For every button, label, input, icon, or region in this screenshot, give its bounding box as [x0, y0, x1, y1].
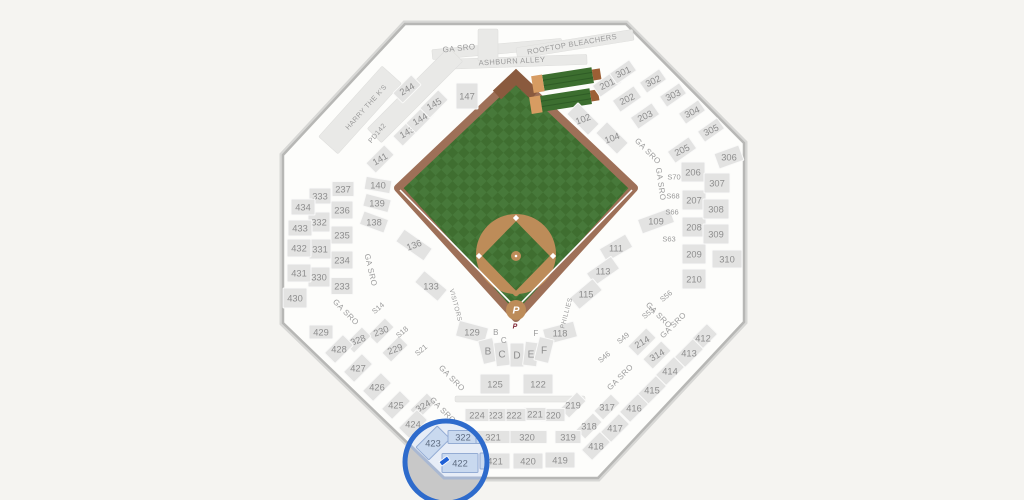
stadium-seat-map: PP10210410911111311511812212512913313613…: [0, 0, 1024, 500]
suite-S70[interactable]: S70: [667, 173, 680, 182]
section-label: 320: [519, 432, 535, 442]
section-label: 416: [626, 403, 642, 413]
section-307[interactable]: 307: [704, 173, 730, 193]
section-label: 420: [520, 456, 536, 466]
section-319[interactable]: 319: [555, 431, 581, 444]
section-label: 308: [708, 204, 724, 214]
section-224[interactable]: 224: [465, 409, 489, 422]
section-label: 129: [464, 327, 480, 337]
section-label: 429: [313, 327, 329, 337]
pitching-rubber: [515, 255, 518, 258]
section-431[interactable]: 431: [287, 264, 311, 282]
section-235[interactable]: 235: [331, 226, 353, 244]
section-label: 113: [596, 266, 611, 276]
section-419[interactable]: 419: [545, 452, 575, 468]
section-label: 147: [459, 91, 475, 101]
label-f: F: [533, 329, 538, 338]
section-label: 122: [530, 379, 546, 389]
section-label: 319: [560, 432, 576, 442]
section-label: 321: [485, 432, 501, 442]
section-label: 422: [452, 458, 468, 468]
section-label: 322: [455, 432, 471, 442]
section-label: 307: [709, 178, 725, 188]
section-208[interactable]: 208: [682, 217, 706, 237]
section-label: 109: [648, 216, 664, 226]
section-label: 430: [287, 293, 303, 303]
phillies-mini-logo-icon: P: [513, 323, 518, 330]
section-label: 139: [369, 198, 385, 208]
section-label: 413: [681, 348, 697, 358]
section-label: 220: [545, 410, 561, 420]
section-434[interactable]: 434: [291, 199, 315, 215]
section-label: 236: [334, 205, 350, 215]
section-label: 421: [487, 456, 503, 466]
label-c: C: [501, 336, 507, 345]
section-125[interactable]: 125: [480, 374, 510, 394]
phillies-logo-icon: P: [512, 305, 520, 317]
section-label: 209: [686, 249, 702, 259]
section-label: 309: [708, 229, 724, 239]
section-209[interactable]: 209: [682, 244, 706, 264]
section-233[interactable]: 233: [331, 278, 353, 295]
section-label: 233: [334, 281, 350, 291]
section-label: 417: [607, 423, 623, 433]
section-label: 234: [334, 255, 350, 265]
section-label: 317: [599, 402, 615, 412]
section-D[interactable]: D: [510, 343, 524, 367]
section-147[interactable]: 147: [456, 83, 478, 109]
section-label: 331: [312, 244, 328, 254]
section-label: 428: [331, 344, 347, 354]
section-420[interactable]: 420: [513, 453, 543, 469]
section-label: 432: [291, 243, 307, 253]
section-label: 318: [581, 421, 597, 431]
section-label: 419: [552, 455, 568, 465]
section-label: 224: [469, 410, 485, 420]
section-433[interactable]: 433: [288, 220, 312, 236]
section-237[interactable]: 237: [332, 182, 354, 197]
section-label: 219: [565, 400, 581, 410]
section-236[interactable]: 236: [331, 201, 353, 219]
section-C[interactable]: C: [494, 341, 511, 367]
section-label: 133: [423, 281, 439, 291]
section-label: C: [498, 350, 505, 361]
section-label: 115: [579, 289, 594, 299]
section-label: 222: [506, 410, 522, 420]
section-label: 125: [487, 379, 503, 389]
section-331[interactable]: 331: [309, 239, 331, 259]
seat-map-page: PP10210410911111311511812212512913313613…: [0, 0, 1024, 500]
section-label: 431: [291, 268, 307, 278]
section-label: D: [513, 351, 520, 362]
section-309[interactable]: 309: [703, 224, 729, 244]
walkway-strip: [478, 29, 498, 61]
section-430[interactable]: 430: [283, 288, 307, 308]
section-210[interactable]: 210: [682, 269, 706, 289]
section-label: 332: [311, 217, 327, 227]
section-432[interactable]: 432: [287, 239, 311, 257]
section-label: 414: [662, 366, 678, 376]
section-206[interactable]: 206: [681, 162, 705, 182]
suite-S63[interactable]: S63: [662, 235, 675, 244]
section-234[interactable]: 234: [331, 251, 353, 269]
section-label: 207: [686, 195, 702, 205]
section-207[interactable]: 207: [682, 190, 706, 210]
section-label: 235: [334, 230, 350, 240]
section-label: 208: [686, 222, 702, 232]
section-label: 221: [527, 409, 543, 419]
section-label: 111: [609, 243, 623, 253]
section-label: 433: [292, 223, 308, 233]
section-label: F: [541, 346, 547, 357]
label-b: B: [493, 328, 499, 337]
section-429[interactable]: 429: [309, 325, 333, 339]
section-label: 138: [366, 217, 382, 227]
section-122[interactable]: 122: [523, 374, 553, 394]
section-label: 223: [487, 410, 503, 420]
section-308[interactable]: 308: [703, 199, 729, 219]
section-label: 237: [335, 184, 351, 194]
section-label: 330: [311, 272, 327, 282]
section-221[interactable]: 221: [524, 408, 546, 421]
section-320[interactable]: 320: [507, 431, 547, 444]
section-label: 206: [685, 167, 701, 177]
section-label: 427: [350, 363, 366, 373]
section-310[interactable]: 310: [712, 250, 742, 268]
section-label: 424: [405, 419, 421, 429]
section-label: 423: [425, 438, 441, 448]
section-label: 310: [719, 254, 735, 264]
section-label: 425: [388, 400, 404, 410]
section-label: 412: [695, 333, 711, 343]
section-label: 426: [369, 382, 385, 392]
section-label: 306: [721, 152, 737, 162]
section-label: 140: [370, 180, 386, 190]
section-label: B: [485, 347, 492, 358]
section-label: 418: [588, 441, 604, 451]
section-label: 434: [295, 202, 311, 212]
section-label: 415: [644, 385, 660, 395]
section-label: 210: [686, 274, 702, 284]
suite-S66[interactable]: S66: [665, 208, 678, 217]
